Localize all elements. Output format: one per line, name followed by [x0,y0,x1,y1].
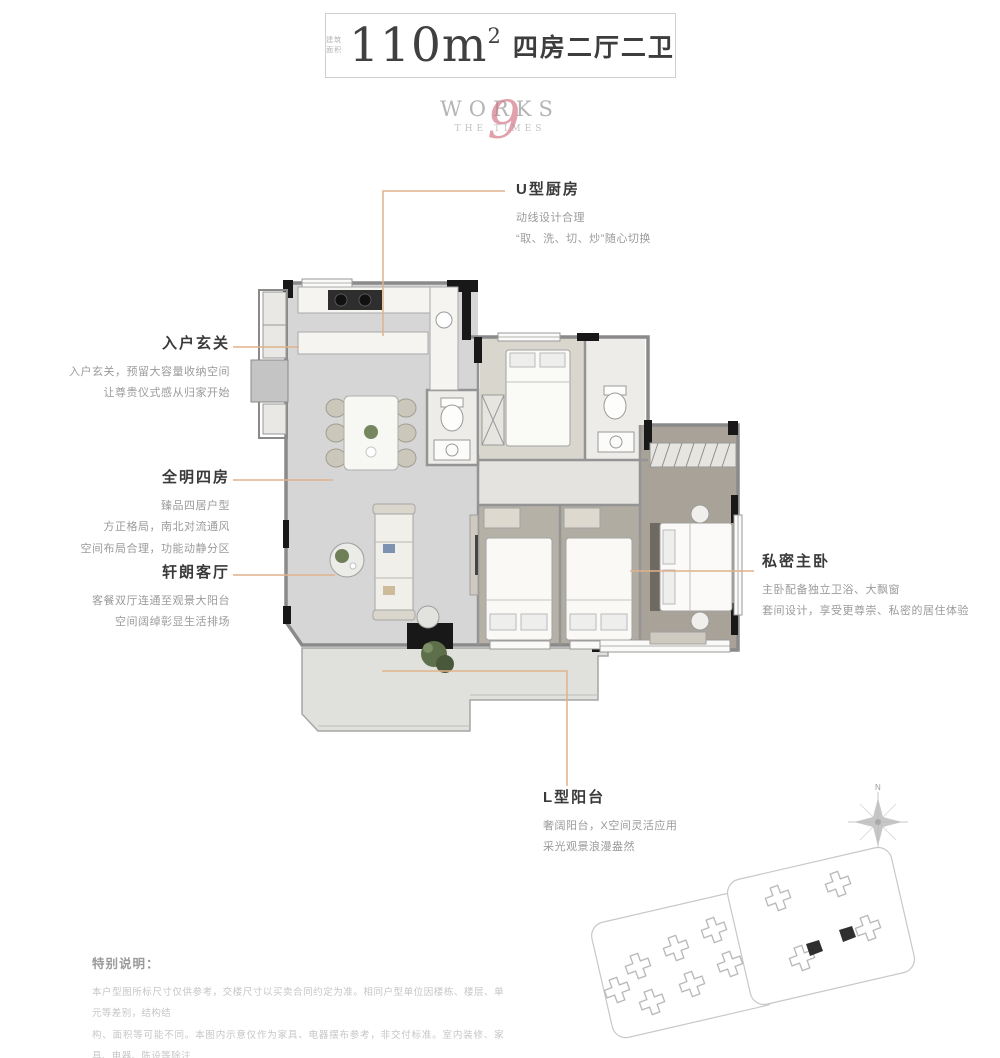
pillow [601,614,627,630]
note-line: 构、面积等可能不同。本图内示意仅作为家具、电器摆布参考，非交付标准。室内装修、家… [92,1025,504,1058]
annotation-rooms: 全明四房 臻品四居户型 方正格局，南北对流通风 空间布局合理，功能动静分区 [18,466,230,560]
bed [506,350,570,446]
wardrobe [650,443,736,467]
special-note: 特别说明： 本户型图所标尺寸仅供参考，交楼尺寸以买卖合同约定为准。相同户型单位因… [92,953,504,1058]
annotation-title: 轩朗客厅 [18,561,230,582]
balcony [302,648,608,731]
annotation-line: 主卧配备独立卫浴、大飘窗 [762,580,997,601]
sofa-pillow [383,586,395,595]
wardrobe [482,395,504,445]
annotation-line: 入户玄关，预留大容量收纳空间 [18,362,230,383]
nightstand [691,612,709,630]
compass-north-label: N [875,783,881,792]
bathroom-sink-icon [434,440,470,460]
entry-door [251,360,288,402]
toilet-icon [441,398,463,431]
annotation-title: U型厨房 [516,178,651,199]
annotation-living: 轩朗客厅 客餐双厅连通至观景大阳台 空间阔绰彰显生活排场 [18,561,230,634]
dining-chair [326,449,346,467]
side-table [417,606,439,628]
toilet-icon [604,386,626,419]
pillow [540,353,565,367]
dining-chair [396,449,416,467]
dining-chair [396,424,416,442]
parcel [725,845,917,1008]
annotation-line: 臻品四居户型 [18,496,230,517]
logo-mark-icon: 9 [487,91,520,151]
sofa-pillow [383,544,395,553]
annotation-title: 全明四房 [18,466,230,487]
bathroom-sink-icon [598,432,634,452]
layout-text: 四房二厅二卫 [513,28,675,64]
note-title: 特别说明： [92,953,504,972]
desk [564,508,600,528]
table-plant-icon [364,425,378,439]
kitchen-sink-icon [436,312,452,328]
annotation-line: 方正格局，南北对流通风 [18,517,230,538]
coffee-table [330,543,364,577]
desk [484,508,520,528]
area-title-box: 建筑 面积 110m2 四房二厅二卫 [325,13,676,78]
annotation-line: “取、洗、切、炒”随心切换 [516,229,651,250]
stove-icon [328,290,382,310]
annotation-line: 空间布局合理，功能动静分区 [18,539,230,560]
dining-chair [326,424,346,442]
corridor-floor [478,455,640,505]
brand-logo: 9 WORKS THE TIMES [400,97,600,134]
note-line: 本户型图所标尺寸仅供参考，交楼尺寸以买卖合同约定为准。相同户型单位因楼栋、楼层、… [92,982,504,1025]
annotation-title: 入户玄关 [18,332,230,353]
pillow [570,614,596,630]
pillow [510,353,535,367]
annotation-title: L型阳台 [543,786,677,807]
annotation-line: 套间设计，享受更尊崇、私密的居住体验 [762,601,997,622]
site-map [589,845,917,1041]
annotation-line: 奢阔阳台，X空间灵活应用 [543,816,677,837]
pillow [663,570,675,604]
annotation-entry: 入户玄关 入户玄关，预留大容量收纳空间 让尊贵仪式感从归家开始 [18,332,230,405]
dining-table [326,396,416,470]
tv-console [470,515,478,595]
nightstand [691,505,709,523]
headboard [650,523,660,611]
annotation-title: 私密主卧 [762,550,997,571]
annotation-line: 动线设计合理 [516,208,651,229]
dining-chair [326,399,346,417]
annotation-balcony: L型阳台 奢阔阳台，X空间灵活应用 采光观景浪漫盎然 [543,786,677,859]
dresser [650,632,706,644]
compass-icon: N [848,783,908,852]
pillow [521,614,547,630]
annotation-line: 让尊贵仪式感从归家开始 [18,383,230,404]
area-value: 110m2 [349,22,502,69]
annotation-line: 空间阔绰彰显生活排场 [18,612,230,633]
floor-plan-page: N [0,0,1000,1058]
annotation-master: 私密主卧 主卧配备独立卫浴、大飘窗 套间设计，享受更尊崇、私密的居住体验 [762,550,997,623]
annotation-line: 采光观景浪漫盎然 [543,837,677,858]
pillow [663,530,675,564]
plant-icon [335,549,349,563]
annotation-kitchen: U型厨房 动线设计合理 “取、洗、切、炒”随心切换 [516,178,651,251]
area-label: 建筑 面积 [326,36,342,55]
annotation-line: 客餐双厅连通至观景大阳台 [18,591,230,612]
sofa [373,504,415,620]
dining-chair [396,399,416,417]
pillow [490,614,516,630]
